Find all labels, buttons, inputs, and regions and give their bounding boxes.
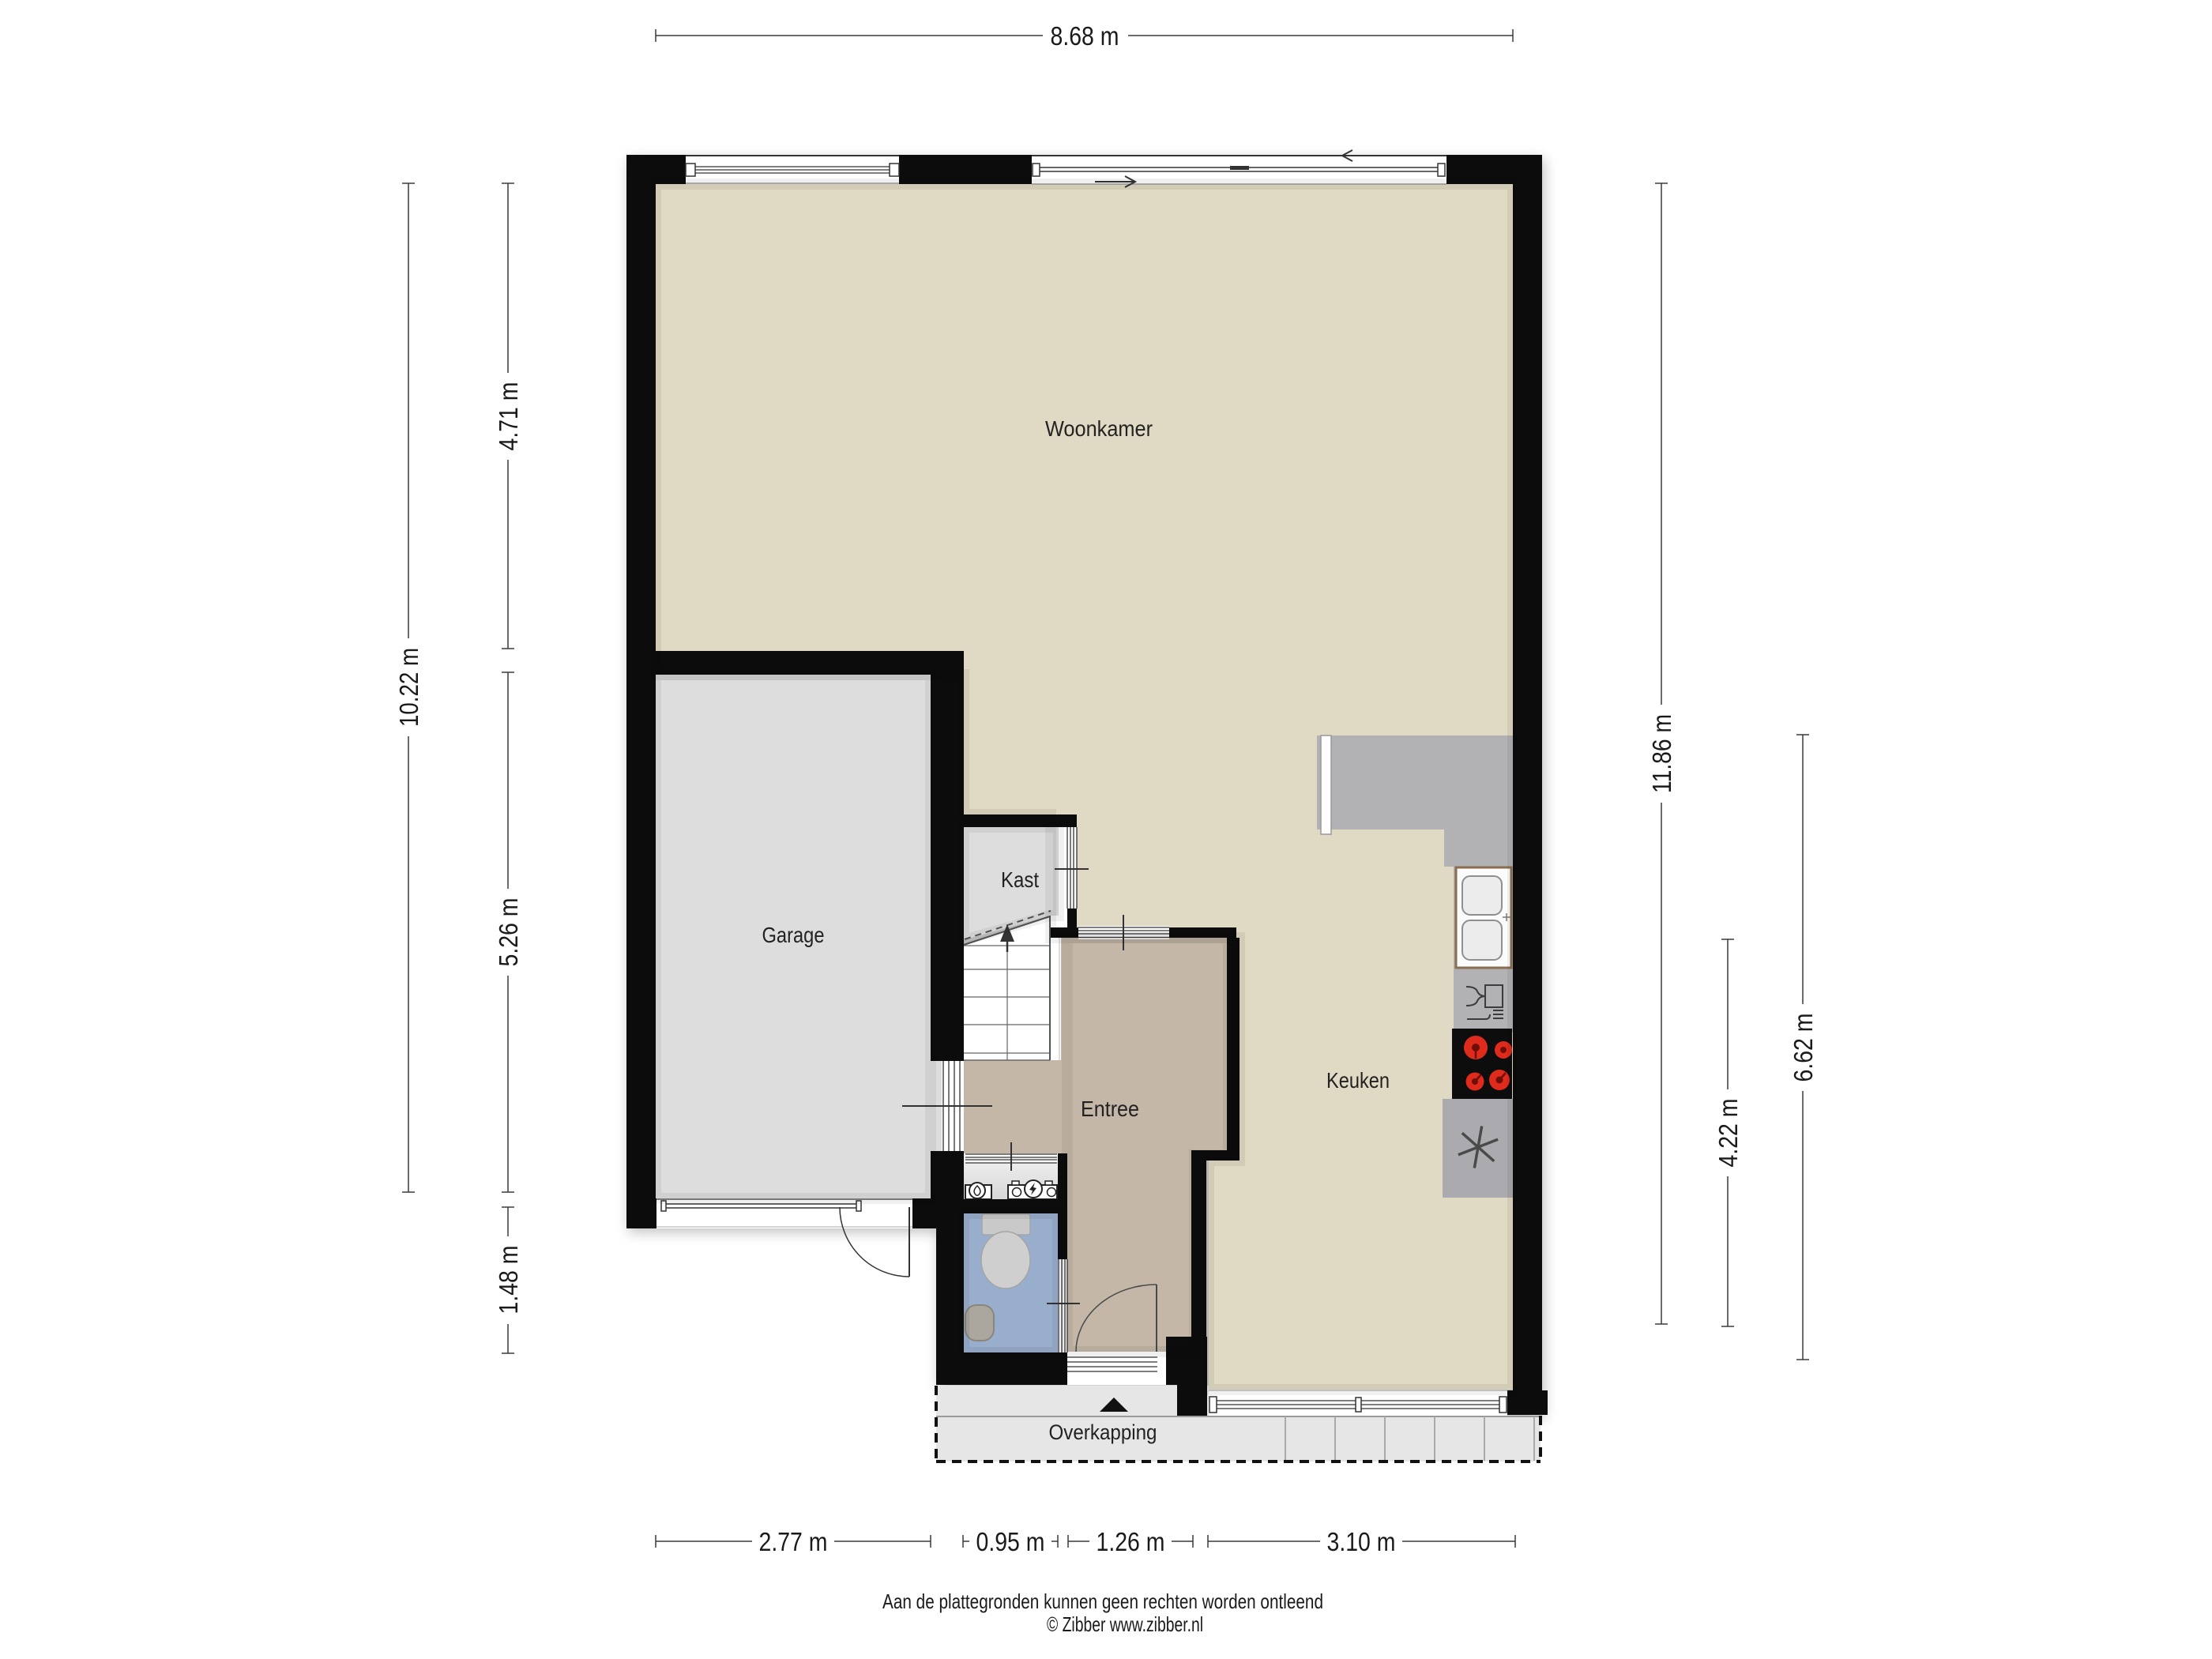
svg-text:8.68 m: 8.68 m [1051,21,1119,51]
svg-text:3.10 m: 3.10 m [1327,1527,1396,1556]
svg-text:2.77 m: 2.77 m [759,1527,828,1556]
svg-text:Keuken: Keuken [1326,1068,1390,1093]
svg-text:10.22 m: 10.22 m [394,648,423,727]
svg-text:1.26 m: 1.26 m [1097,1527,1165,1556]
svg-text:© Zibber www.zibber.nl: © Zibber www.zibber.nl [1047,1612,1203,1636]
svg-text:5.26 m: 5.26 m [494,898,523,967]
svg-text:Entree: Entree [1081,1097,1139,1121]
svg-text:6.62 m: 6.62 m [1789,1014,1818,1082]
svg-text:0.95 m: 0.95 m [976,1527,1045,1556]
svg-text:4.71 m: 4.71 m [494,382,523,451]
svg-text:Aan de plattegronden kunnen ge: Aan de plattegronden kunnen geen rechten… [882,1589,1323,1613]
svg-text:Garage: Garage [762,923,825,947]
svg-text:Woonkamer: Woonkamer [1045,416,1153,441]
svg-text:Kast: Kast [1001,867,1039,892]
svg-text:11.86 m: 11.86 m [1647,714,1676,793]
svg-text:1.48 m: 1.48 m [494,1246,523,1315]
svg-text:Overkapping: Overkapping [1049,1420,1157,1444]
svg-text:4.22 m: 4.22 m [1714,1099,1743,1168]
